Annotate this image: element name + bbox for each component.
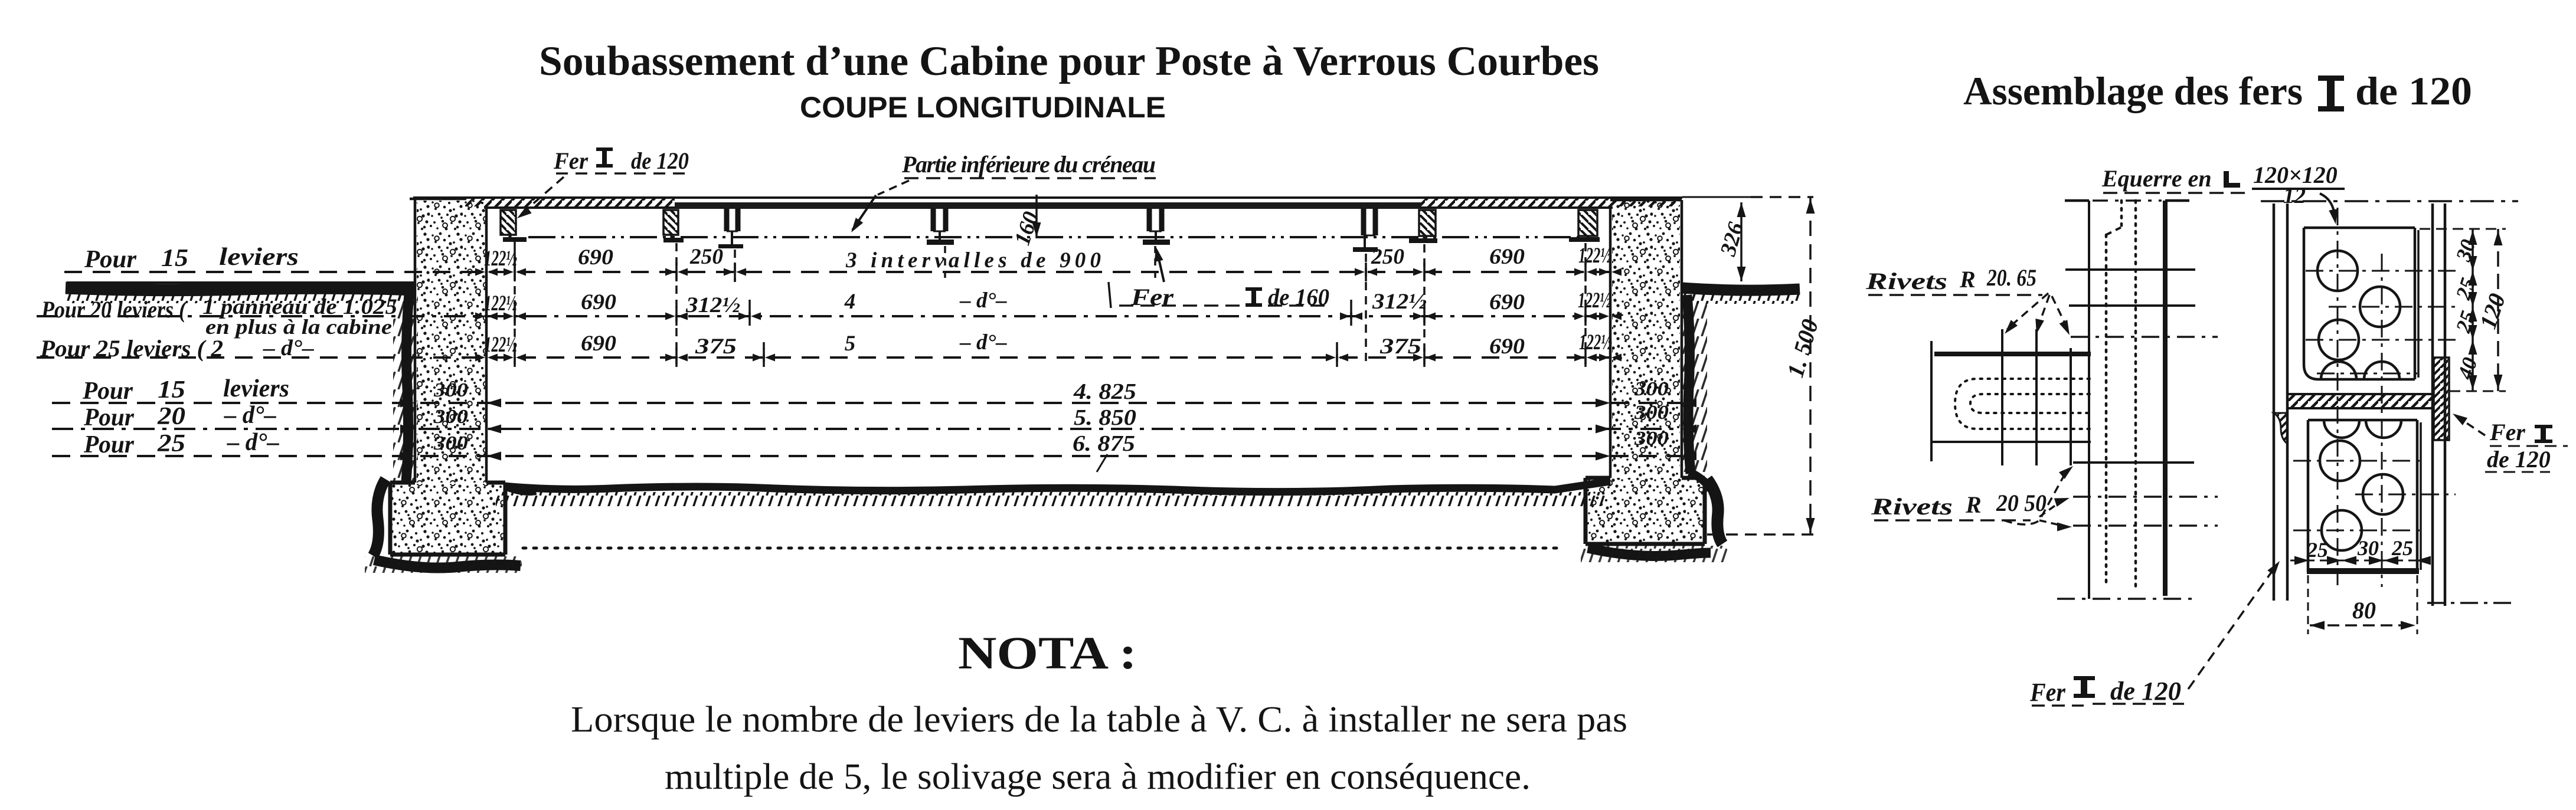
svg-text:de 120: de 120 (2110, 677, 2181, 706)
svg-text:Pour: Pour (84, 246, 137, 273)
svg-text:Pour: Pour (83, 431, 135, 458)
svg-text:690: 690 (581, 290, 616, 314)
svg-text:Partie inférieure du créneau: Partie inférieure du créneau (901, 151, 1156, 178)
svg-text:15: 15 (161, 245, 188, 272)
svg-text:– d°–: – d°– (227, 429, 279, 456)
svg-text:Pour 25 leviers ( 2: Pour 25 leviers ( 2 (40, 335, 223, 362)
svg-text:5: 5 (845, 332, 856, 356)
svg-text:Equerre en: Equerre en (2101, 165, 2212, 192)
svg-text:Fer: Fer (2029, 678, 2066, 707)
svg-text:25: 25 (157, 430, 185, 457)
svg-text:R: R (1965, 491, 1982, 518)
svg-text:312½: 312½ (1372, 290, 1427, 314)
svg-text:375: 375 (1379, 335, 1421, 359)
svg-text:250: 250 (1371, 245, 1404, 269)
svg-text:690: 690 (581, 332, 616, 356)
svg-text:de 120: de 120 (631, 147, 689, 174)
svg-text:20. 65: 20. 65 (1986, 264, 2036, 291)
svg-text:80: 80 (2352, 597, 2376, 624)
svg-text:Pour: Pour (83, 404, 135, 431)
svg-text:leviers: leviers (223, 375, 289, 402)
svg-text:leviers: leviers (219, 244, 299, 271)
svg-text:300: 300 (1634, 378, 1669, 400)
svg-text:20: 20 (157, 403, 185, 430)
svg-text:122½: 122½ (1578, 244, 1611, 268)
svg-text:4: 4 (844, 290, 856, 314)
svg-text:– d°–: – d°– (959, 288, 1007, 313)
svg-text:Fer: Fer (2489, 419, 2525, 445)
svg-text:300: 300 (433, 379, 468, 401)
svg-text:de 120: de 120 (2355, 68, 2472, 113)
svg-text:– d°–: – d°– (959, 330, 1007, 355)
svg-text:25: 25 (2391, 536, 2413, 560)
svg-text:122½: 122½ (484, 291, 517, 316)
svg-text:Assemblage des fers: Assemblage des fers (1963, 68, 2303, 113)
svg-text:25: 25 (2306, 538, 2328, 562)
svg-text:Lorsque le nombre de leviers d: Lorsque le nombre de leviers de la table… (571, 700, 1627, 740)
svg-text:Rivets: Rivets (1871, 493, 1953, 520)
svg-text:122½: 122½ (1579, 330, 1612, 355)
svg-text:– d°–: – d°– (224, 402, 276, 429)
svg-text:COUPE LONGITUDINALE: COUPE LONGITUDINALE (800, 91, 1166, 124)
svg-text:20 50: 20 50 (1996, 490, 2047, 516)
svg-text:300: 300 (433, 432, 468, 454)
svg-text:6. 875: 6. 875 (1073, 431, 1135, 456)
svg-text:690: 690 (1489, 290, 1525, 314)
svg-text:– d°–: – d°– (263, 336, 314, 360)
svg-text:375: 375 (695, 335, 737, 359)
svg-text:Pour: Pour (82, 378, 133, 405)
svg-text:122½: 122½ (484, 333, 517, 357)
svg-text:300: 300 (1634, 402, 1669, 424)
svg-text:122½: 122½ (484, 247, 517, 271)
svg-text:300: 300 (433, 406, 468, 428)
svg-text:R: R (1959, 266, 1976, 293)
svg-text:NOTA :: NOTA : (958, 627, 1137, 678)
svg-text:4. 825: 4. 825 (1073, 379, 1136, 404)
svg-text:30: 30 (2357, 536, 2379, 560)
svg-text:122½: 122½ (1578, 288, 1611, 313)
svg-text:Rivets: Rivets (1865, 268, 1947, 294)
svg-text:12: 12 (2283, 183, 2306, 208)
svg-text:Fer: Fer (553, 147, 588, 174)
svg-text:15: 15 (158, 376, 185, 404)
svg-text:5. 850: 5. 850 (1074, 405, 1136, 430)
svg-text:Soubassement d’une Cabine pour: Soubassement d’une Cabine pour Poste à V… (539, 38, 1599, 84)
svg-text:690: 690 (1489, 335, 1525, 359)
svg-text:312½: 312½ (685, 293, 740, 317)
svg-text:multiple de 5, le solivage ser: multiple de 5, le solivage sera à modifi… (665, 757, 1531, 797)
svg-text:690: 690 (1489, 245, 1525, 269)
svg-text:de 120: de 120 (2487, 446, 2551, 473)
svg-text:Pour 20 leviers (: Pour 20 leviers ( (41, 296, 187, 323)
svg-text:250: 250 (689, 245, 723, 269)
svg-text:en plus à la cabine: en plus à la cabine (205, 315, 392, 339)
svg-text:690: 690 (578, 245, 613, 270)
svg-text:300: 300 (1634, 428, 1669, 450)
